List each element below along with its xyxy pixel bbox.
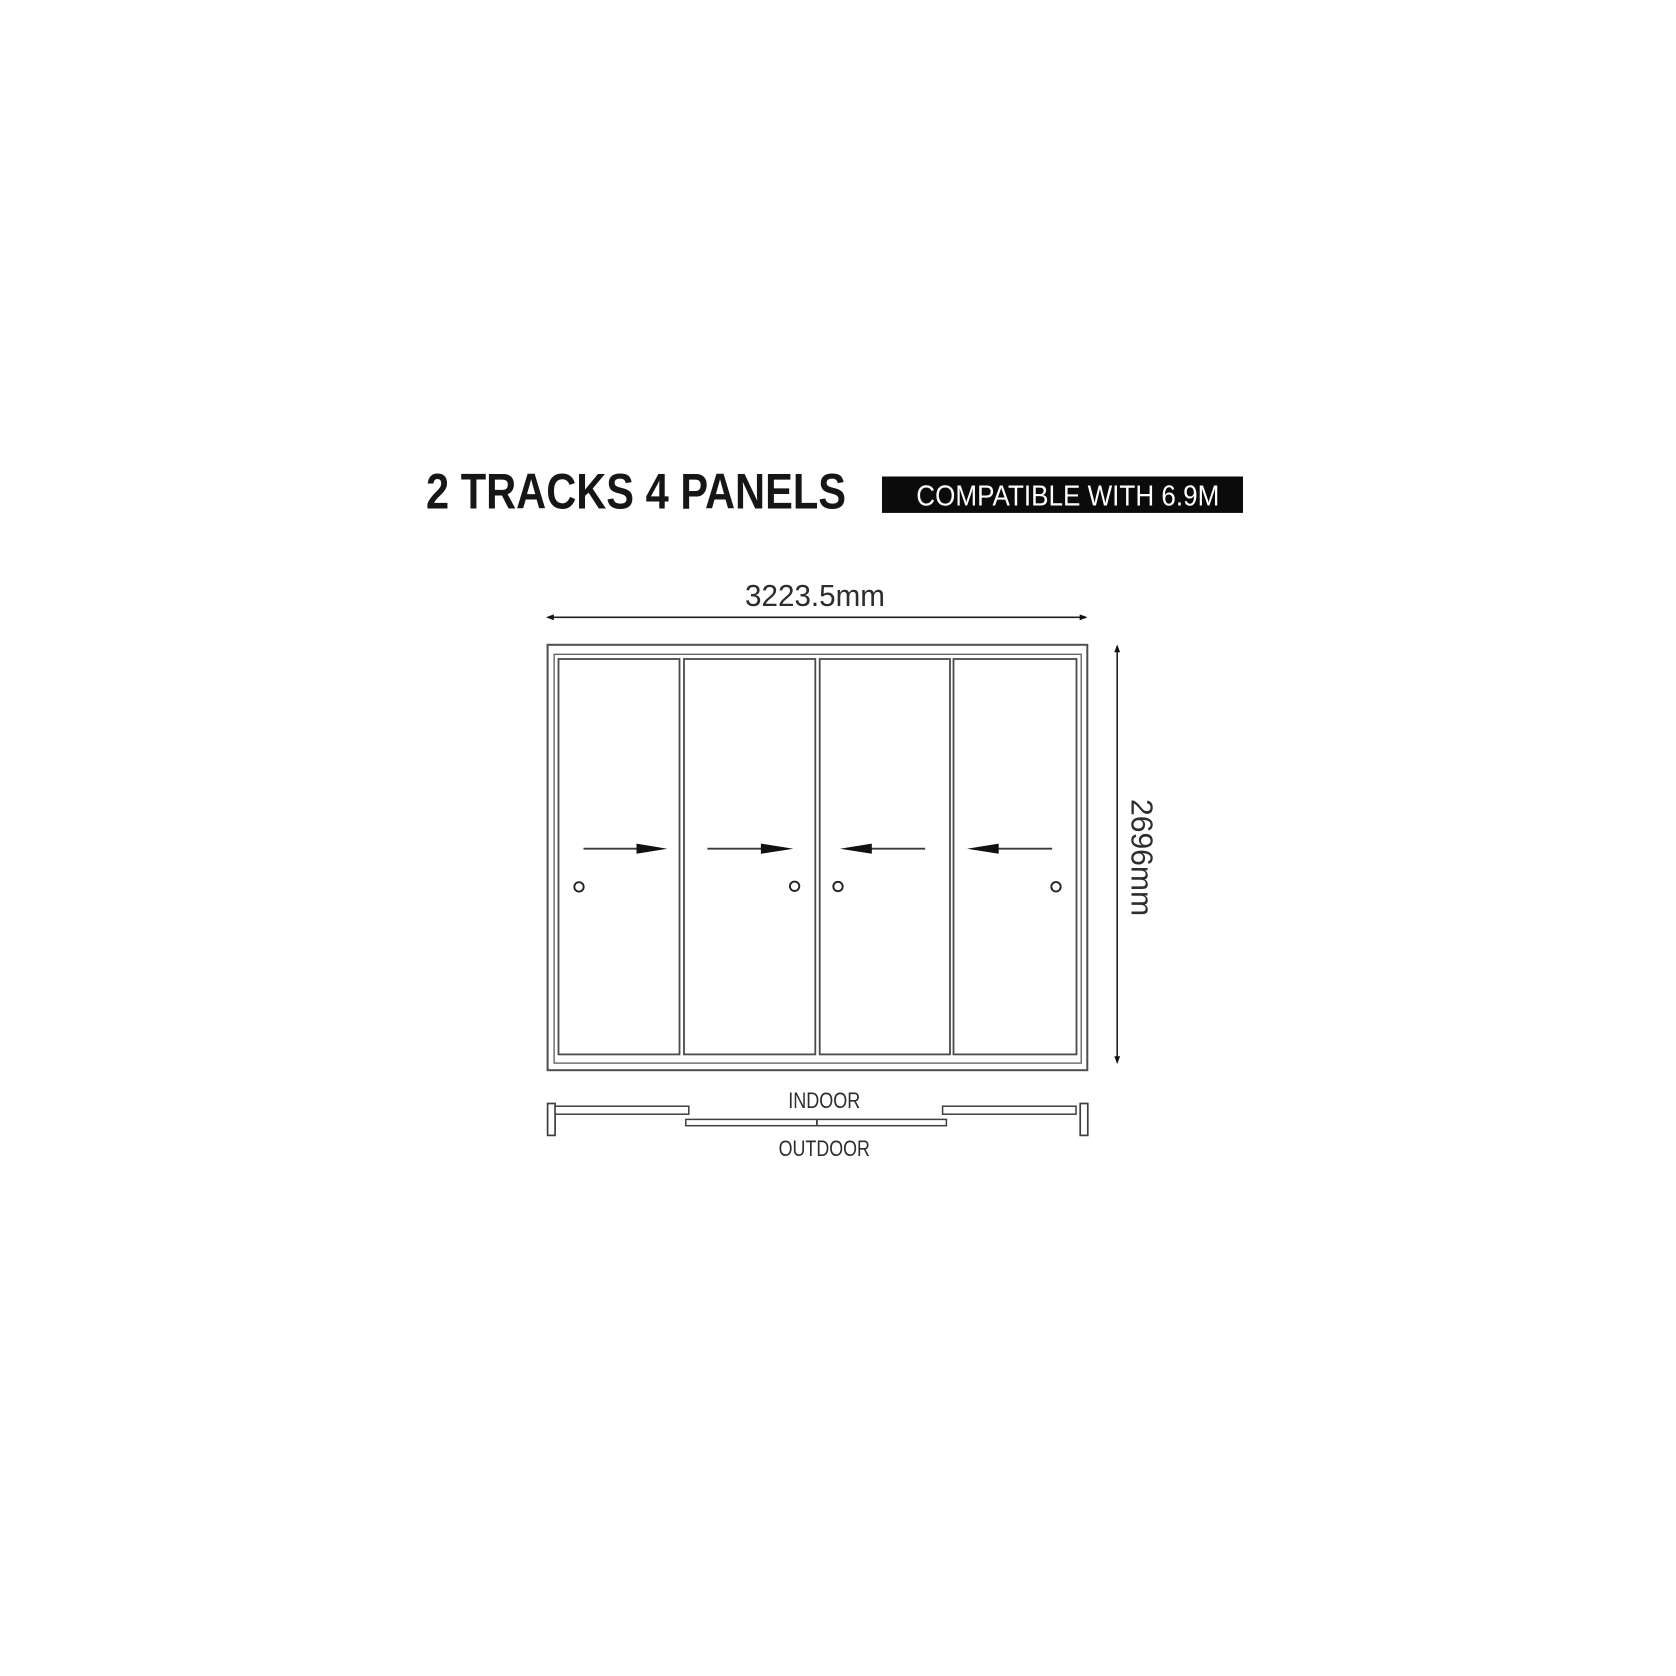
svg-text:2 TRACKS 4 PANELS: 2 TRACKS 4 PANELS	[426, 463, 846, 520]
svg-text:2696mm: 2696mm	[1124, 799, 1158, 916]
svg-text:OUTDOOR: OUTDOOR	[779, 1136, 870, 1161]
svg-text:COMPATIBLE WITH 6.9M: COMPATIBLE WITH 6.9M	[916, 480, 1219, 512]
svg-text:INDOOR: INDOOR	[788, 1088, 860, 1113]
svg-text:3223.5mm: 3223.5mm	[745, 578, 885, 613]
